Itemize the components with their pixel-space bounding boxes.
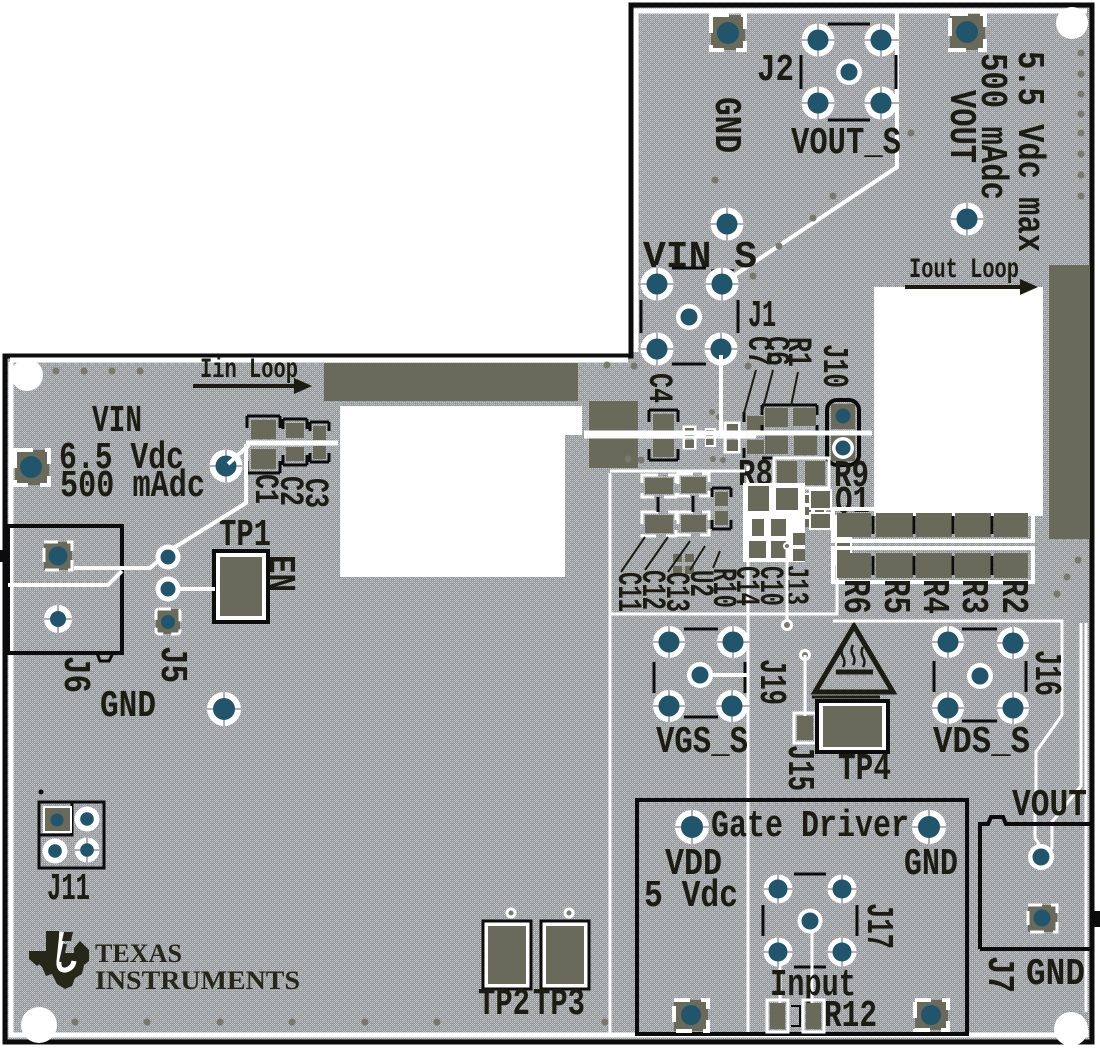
svg-text:TP4: TP4 [838,748,891,791]
svg-text:Iin Loop: Iin Loop [200,355,298,386]
svg-text:C3: C3 [295,478,333,508]
svg-text:VOUT: VOUT [939,90,982,163]
svg-text:J10: J10 [813,344,854,388]
svg-text:Gate Driver: Gate Driver [711,805,909,848]
svg-text:J17: J17 [856,903,899,949]
svg-text:R4: R4 [912,579,955,614]
svg-text:INSTRUMENTS: INSTRUMENTS [95,966,300,995]
svg-text:VGS_S: VGS_S [656,721,748,764]
svg-text:J2: J2 [757,49,794,92]
svg-text:GND: GND [904,843,958,886]
svg-text:J15: J15 [777,745,820,791]
svg-text:GND: GND [100,685,156,728]
svg-text:TP3: TP3 [533,983,585,1026]
svg-text:J7: J7 [977,956,1020,993]
svg-text:R1: R1 [778,337,816,367]
svg-text:J5: J5 [150,646,193,683]
svg-text:C4: C4 [639,373,677,403]
svg-text:5 Vdc: 5 Vdc [644,875,738,918]
svg-text:R3: R3 [951,579,994,614]
svg-text:GND: GND [704,97,747,153]
svg-text:TP2: TP2 [478,983,530,1026]
svg-text:J6: J6 [53,656,96,693]
svg-text:Iout Loop: Iout Loop [909,255,1019,286]
svg-text:EN: EN [258,555,301,592]
svg-text:R12: R12 [824,995,877,1038]
svg-text:J13: J13 [775,565,813,605]
svg-text:500 mAdc: 500 mAdc [60,465,205,508]
svg-text:VDS_S: VDS_S [933,721,1030,764]
svg-text:J16: J16 [1024,650,1067,696]
svg-text:VOUT_S: VOUT_S [791,122,901,165]
svg-text:R5: R5 [873,579,916,614]
svg-text:J11: J11 [47,868,90,911]
svg-text:VOUT: VOUT [1012,784,1087,827]
svg-text:TEXAS: TEXAS [95,939,182,968]
svg-text:R2: R2 [991,579,1034,614]
svg-text:GND: GND [1026,953,1085,996]
svg-text:R6: R6 [833,579,876,614]
svg-text:J1: J1 [748,295,776,338]
svg-text:J19: J19 [749,659,792,705]
